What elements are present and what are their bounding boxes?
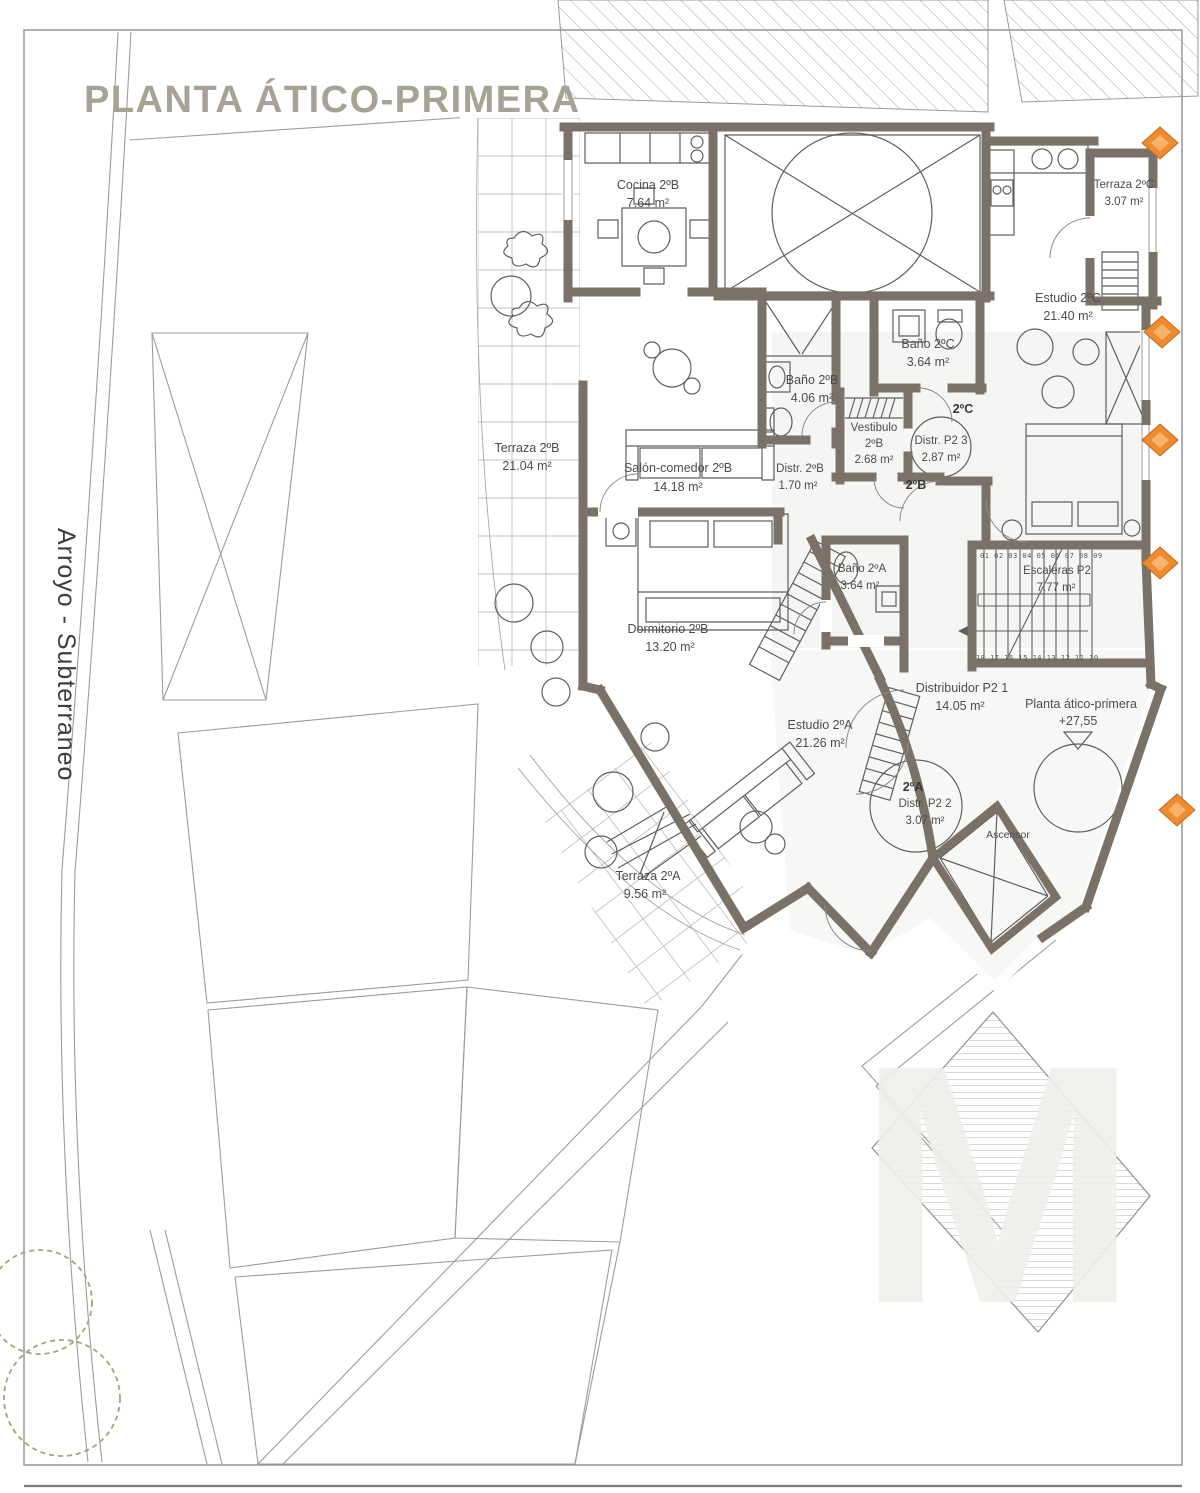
label-bano2b-name: Baño 2ºB bbox=[786, 373, 839, 387]
label-estudio2a-name: Estudio 2ºA bbox=[787, 718, 853, 732]
label-escaleras-area: 7.77 m² bbox=[1037, 582, 1076, 594]
label-distrp23-area: 2.87 m² bbox=[922, 452, 961, 464]
stair-numbers-top: 01 02 03 04 05 06 07 08 09 bbox=[980, 552, 1103, 560]
label-distrp22-name: Distr. P2 2 bbox=[898, 798, 951, 810]
watermark-letter: M bbox=[856, 995, 1139, 1375]
unit-tag-2b: 2ºB bbox=[906, 478, 927, 492]
label-dormitorio-area: 13.20 m² bbox=[645, 640, 694, 654]
label-terraza2b-area: 21.04 m² bbox=[502, 459, 551, 473]
label-distr2b-name: Distr. 2ºB bbox=[776, 463, 824, 475]
label-bano2b-area: 4.06 m² bbox=[791, 391, 833, 405]
unit-tag-2a: 2ºA bbox=[903, 780, 924, 794]
label-bano2a-area: 3.64 m² bbox=[841, 580, 880, 592]
neighbor-hatch-top bbox=[558, 0, 1198, 112]
label-bano2a-name: Baño 2ºA bbox=[838, 563, 887, 575]
label-estudio2c-area: 21.40 m² bbox=[1043, 309, 1092, 323]
label-terraza2a-name: Terraza 2ºA bbox=[615, 869, 681, 883]
floor-plan-svg: M bbox=[0, 0, 1200, 1493]
label-terraza2c-name: Terraza 2ºC bbox=[1094, 179, 1154, 191]
label-distribuidor-area: 14.05 m² bbox=[935, 699, 984, 713]
street-label: Arroyo - Subterraneo bbox=[52, 528, 80, 781]
label-distr2b-area: 1.70 m² bbox=[779, 480, 818, 492]
floor-plan-page: M bbox=[0, 0, 1200, 1493]
label-vestibulo-name: Vestibulo bbox=[851, 422, 898, 434]
label-ascensor: Ascensor bbox=[986, 829, 1030, 841]
label-bano2c-area: 3.64 m² bbox=[907, 355, 949, 369]
label-level-name: Planta ático-primera bbox=[1025, 697, 1137, 711]
label-escaleras-name: Escaleras P2 bbox=[1023, 565, 1091, 577]
label-salon-name: Salón-comedor 2ºB bbox=[624, 461, 732, 475]
label-cocina-name: Cocina 2ºB bbox=[617, 178, 679, 192]
label-estudio2c-name: Estudio 2ºC bbox=[1035, 291, 1101, 305]
label-distribuidor-name: Distribuidor P2 1 bbox=[916, 681, 1008, 695]
page-title: PLANTA ÁTICO-PRIMERA bbox=[84, 77, 581, 121]
tree-icons bbox=[0, 1250, 120, 1456]
label-vestibulo-unit: 2ºB bbox=[865, 438, 884, 450]
unit-tag-2c: 2ºC bbox=[953, 402, 974, 416]
label-dormitorio-name: Dormitorio 2ºB bbox=[628, 622, 709, 636]
label-distrp23-name: Distr. P2 3 bbox=[914, 435, 967, 447]
label-terraza2b-name: Terraza 2ºB bbox=[494, 441, 559, 455]
stair-numbers-bottom: 18 17 16 15 14 13 12 11 10 bbox=[976, 654, 1099, 662]
label-salon-area: 14.18 m² bbox=[653, 480, 702, 494]
label-terraza2a-area: 9.56 m² bbox=[624, 887, 666, 901]
label-distrp22-area: 3.07 m² bbox=[906, 815, 945, 827]
label-vestibulo-area: 2.68 m² bbox=[855, 454, 894, 466]
label-terraza2c-area: 3.07 m² bbox=[1105, 196, 1144, 208]
label-bano2c-name: Baño 2ºC bbox=[901, 337, 954, 351]
label-estudio2a-area: 21.26 m² bbox=[795, 736, 844, 750]
label-cocina-area: 7.64 m² bbox=[627, 196, 669, 210]
label-level-elevation: +27,55 bbox=[1059, 714, 1098, 728]
